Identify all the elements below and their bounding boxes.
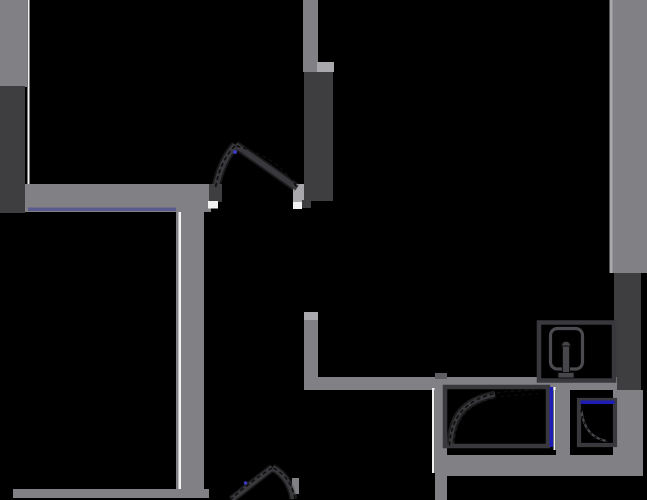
door2-pivot-dot xyxy=(244,481,248,485)
floor-plan-svg xyxy=(0,0,647,500)
closet-cap xyxy=(317,62,334,72)
door1-jamb-right-dark xyxy=(302,200,311,208)
wall-left-upper xyxy=(0,0,27,87)
wall-bath-bottom xyxy=(437,455,643,476)
wall-bath-divider xyxy=(556,385,570,458)
wall-hall-face-line xyxy=(179,212,182,489)
shower-glass-blue xyxy=(550,387,554,447)
sink-glass-blue xyxy=(581,401,615,405)
wall-bottom-left xyxy=(13,489,209,498)
bath-mid-cap xyxy=(435,373,447,379)
washer-knob-base xyxy=(558,373,574,379)
panel-left-dark xyxy=(0,86,25,213)
panel-right-dark xyxy=(614,273,641,397)
floor-plan-canvas xyxy=(0,0,647,500)
wall-left-face-line xyxy=(28,0,30,186)
accent-entry-purple xyxy=(28,208,178,212)
door1-sill-right xyxy=(293,202,302,209)
wall-closet-top xyxy=(303,0,318,72)
door1-pivot-dot xyxy=(233,150,237,154)
bath-corner-cap xyxy=(304,312,318,320)
door1-sill-left xyxy=(208,201,218,209)
wall-bath-right-lower xyxy=(613,390,643,460)
wall-right-upper xyxy=(612,0,647,273)
door1-leaf-right xyxy=(236,145,298,188)
washer-knob-stem xyxy=(563,346,570,373)
bath-divider-face-line xyxy=(554,387,556,450)
panel-closet-dark xyxy=(304,72,333,201)
wall-bath-mid-face-line xyxy=(432,388,435,473)
wall-right-face-line xyxy=(610,0,613,273)
